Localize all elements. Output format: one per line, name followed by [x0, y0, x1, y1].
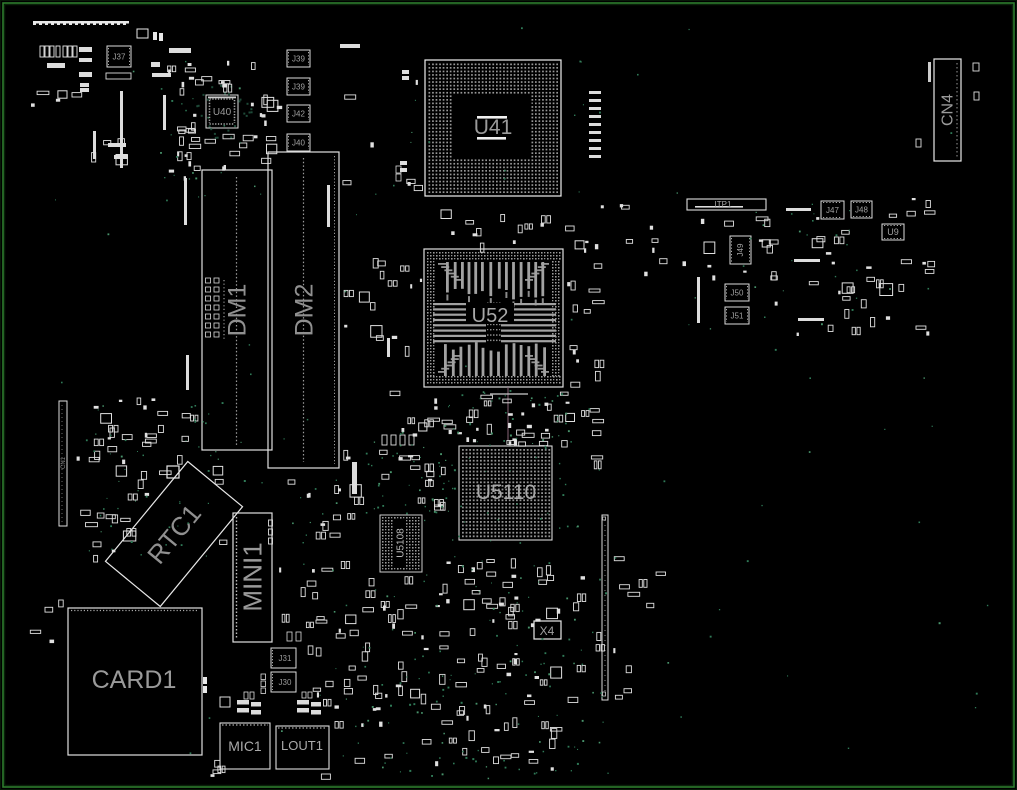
svg-text:U41: U41: [474, 116, 513, 139]
svg-text:U40: U40: [213, 107, 232, 118]
svg-text:CARD1: CARD1: [92, 666, 177, 694]
svg-text:J47: J47: [826, 206, 839, 215]
svg-text:CN1: CN1: [61, 456, 67, 469]
svg-text:J39: J39: [292, 82, 305, 91]
svg-text:J39: J39: [292, 54, 305, 63]
svg-text:J37: J37: [113, 52, 126, 61]
svg-text:J50: J50: [731, 288, 744, 297]
svg-text:J49: J49: [736, 243, 745, 256]
svg-text:U5108: U5108: [396, 528, 407, 558]
svg-text:X4: X4: [540, 624, 555, 638]
svg-text:ITP1: ITP1: [715, 200, 732, 209]
svg-text:J48: J48: [855, 205, 868, 214]
svg-text:DM1: DM1: [223, 284, 251, 337]
svg-text:U9: U9: [887, 227, 899, 237]
svg-text:U52: U52: [472, 305, 509, 327]
svg-text:J30: J30: [279, 678, 292, 687]
svg-text:U5110: U5110: [476, 481, 536, 504]
svg-text:J31: J31: [279, 654, 292, 663]
svg-text:DM2: DM2: [290, 284, 318, 337]
svg-text:MIC1: MIC1: [228, 738, 262, 754]
svg-text:J40: J40: [292, 138, 305, 147]
svg-text:CN4: CN4: [940, 94, 957, 126]
svg-text:J42: J42: [292, 109, 305, 118]
svg-text:LOUT1: LOUT1: [281, 738, 323, 753]
svg-text:J51: J51: [731, 311, 744, 320]
svg-text:MINI1: MINI1: [238, 542, 268, 611]
